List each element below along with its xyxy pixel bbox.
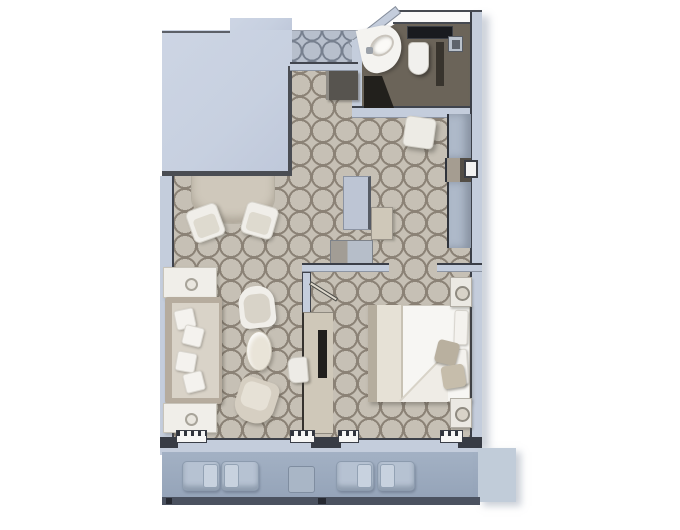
shower-partition xyxy=(436,42,444,86)
corridor-carpet xyxy=(292,30,358,64)
structure-block-right-edge xyxy=(288,66,292,176)
end-table-top xyxy=(163,267,217,298)
balcony-deck-extension xyxy=(478,448,516,502)
railing-post-2 xyxy=(318,498,326,504)
door-track-1 xyxy=(176,430,207,443)
accent-cushion-2 xyxy=(440,363,466,389)
divider-wall xyxy=(302,272,311,314)
railing-post-1 xyxy=(166,498,172,504)
sofa-pillow-3 xyxy=(174,350,197,373)
lounger-1 xyxy=(182,461,220,491)
structure-block xyxy=(162,30,292,176)
entry-bench xyxy=(326,71,358,100)
nightstand-top xyxy=(450,277,472,307)
door-track-2 xyxy=(290,430,315,443)
bed-pillow-1 xyxy=(453,310,468,345)
wall-pier-2 xyxy=(311,437,341,448)
bed-foot-edge xyxy=(368,305,377,402)
bathroom-top-band xyxy=(393,10,482,24)
entry-wall xyxy=(290,62,358,71)
lounger-3-backrest xyxy=(357,464,372,488)
shower-fixture-head xyxy=(452,40,460,49)
door-track-4 xyxy=(440,430,463,443)
wardrobe xyxy=(343,176,371,230)
closet-top xyxy=(447,114,471,158)
bedroom-wall-right xyxy=(437,263,482,272)
bed-blanket-runner xyxy=(377,305,403,402)
bedroom-wall-left xyxy=(302,263,389,272)
low-cabinet xyxy=(330,240,373,264)
lounger-2 xyxy=(221,461,259,491)
right-wall xyxy=(470,12,482,446)
closet-bottom xyxy=(447,182,471,248)
structure-block-top-edge xyxy=(162,31,230,33)
faucet xyxy=(366,47,373,54)
floor-plan xyxy=(0,0,680,530)
lounger-1-backrest xyxy=(203,464,218,488)
balcony-table xyxy=(288,466,315,493)
tall-beige-unit xyxy=(371,207,393,240)
tv xyxy=(318,330,327,378)
lounger-2-backrest xyxy=(224,464,239,488)
lounger-3 xyxy=(336,461,374,491)
bathroom-counter xyxy=(407,26,453,39)
oval-coffee-table xyxy=(246,331,272,371)
dressing-stool xyxy=(402,115,437,150)
toilet xyxy=(408,42,429,75)
lounger-4 xyxy=(377,461,415,491)
end-table-bottom xyxy=(163,403,217,433)
desk-chair xyxy=(287,356,309,384)
door-track-3 xyxy=(338,430,359,443)
lounger-4-backrest xyxy=(380,464,395,488)
safe-box xyxy=(464,160,478,178)
nightstand-bottom xyxy=(450,398,472,428)
